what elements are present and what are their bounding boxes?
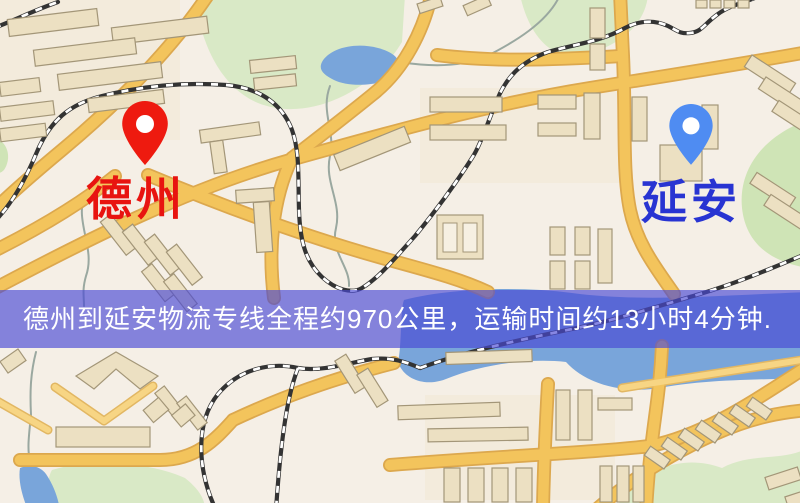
pin-hole	[682, 117, 699, 134]
pin-hole	[136, 115, 154, 133]
map-base	[0, 0, 800, 503]
route-info-text: 德州到延安物流专线全程约970公里，运输时间约13小时4分钟.	[0, 290, 800, 348]
map-canvas[interactable]: 德州 延安 德州到延安物流专线全程约970公里，运输时间约13小时4分钟.	[0, 0, 800, 503]
origin-label: 德州	[86, 177, 186, 223]
route-info-banner: 德州到延安物流专线全程约970公里，运输时间约13小时4分钟.	[0, 290, 800, 348]
destination-label: 延安	[641, 180, 741, 226]
